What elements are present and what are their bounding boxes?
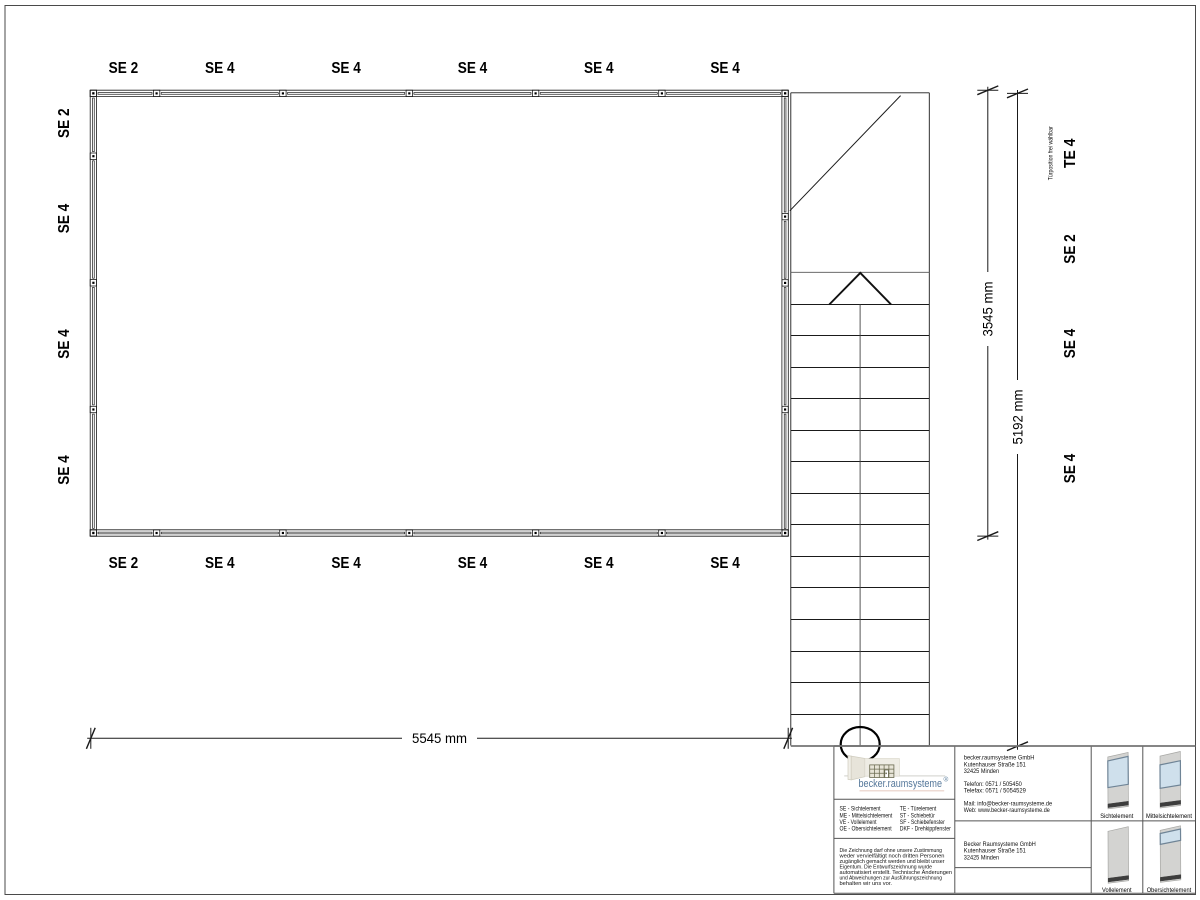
svg-text:SE 4: SE 4 [331, 60, 361, 77]
svg-text:Türposition frei wählbar: Türposition frei wählbar [1048, 126, 1055, 180]
svg-text:SE 4: SE 4 [56, 455, 73, 485]
svg-text:Obersichtelement: Obersichtelement [1147, 887, 1192, 894]
svg-text:SE 2: SE 2 [56, 108, 73, 138]
svg-text:SE 2: SE 2 [109, 555, 139, 572]
svg-text:Sichtelement: Sichtelement [1100, 813, 1133, 820]
svg-text:SE 4: SE 4 [710, 60, 740, 77]
svg-text:SE 2: SE 2 [1062, 234, 1079, 264]
svg-text:5192 mm: 5192 mm [1009, 390, 1025, 445]
svg-text:SE 4: SE 4 [205, 555, 235, 572]
svg-text:SE 4: SE 4 [205, 60, 235, 77]
svg-text:OE - Obersichtelement: OE - Obersichtelement [840, 826, 892, 833]
svg-text:32425 Minden: 32425 Minden [964, 768, 999, 775]
svg-text:SE 2: SE 2 [109, 60, 139, 77]
svg-text:SE 4: SE 4 [56, 329, 73, 359]
svg-text:SE 4: SE 4 [458, 60, 488, 77]
svg-text:SE 4: SE 4 [584, 60, 614, 77]
svg-text:SE 4: SE 4 [331, 555, 361, 572]
svg-text:SE 4: SE 4 [458, 555, 488, 572]
svg-text:behalten wir uns vor.: behalten wir uns vor. [840, 881, 893, 887]
svg-text:TE 4: TE 4 [1062, 138, 1079, 168]
svg-text:32425 Minden: 32425 Minden [964, 854, 999, 861]
svg-text:Mittelsichtelement: Mittelsichtelement [1146, 813, 1192, 820]
svg-text:SE 4: SE 4 [584, 555, 614, 572]
svg-text:SE 4: SE 4 [56, 204, 73, 234]
svg-text:Vollelement: Vollelement [1102, 887, 1132, 894]
svg-text:Telefax: 0571 / 5054529: Telefax: 0571 / 5054529 [964, 788, 1026, 795]
svg-text:DKF - Drehkippfenster: DKF - Drehkippfenster [900, 826, 952, 833]
svg-text:SE 4: SE 4 [1062, 329, 1079, 359]
svg-text:Web: www.becker-raumsysteme.de: Web: www.becker-raumsysteme.de [964, 807, 1050, 814]
svg-text:SE 4: SE 4 [1062, 454, 1079, 484]
svg-text:becker.raumsysteme: becker.raumsysteme [859, 778, 943, 790]
svg-text:SE 4: SE 4 [710, 555, 740, 572]
svg-text:3545 mm: 3545 mm [980, 282, 996, 337]
svg-text:5545 mm: 5545 mm [412, 730, 467, 746]
svg-text:®: ® [944, 776, 949, 784]
